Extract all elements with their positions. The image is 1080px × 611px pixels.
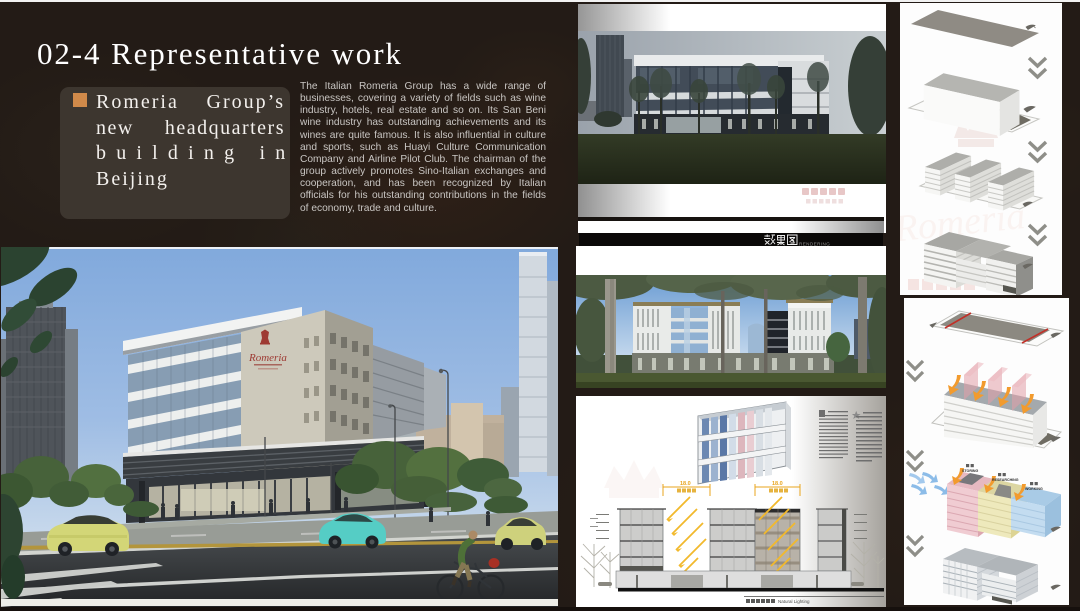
svg-text:STORING: STORING [962,469,979,473]
svg-text:Natural Lighting: Natural Lighting [778,599,810,604]
svg-text:Romeria: Romeria [248,352,287,364]
svg-text:18.0: 18.0 [772,481,783,487]
svg-text:WORKING: WORKING [1025,487,1043,491]
svg-text:18.0: 18.0 [680,481,691,487]
svg-text:RESEARCHING: RESEARCHING [992,478,1019,482]
